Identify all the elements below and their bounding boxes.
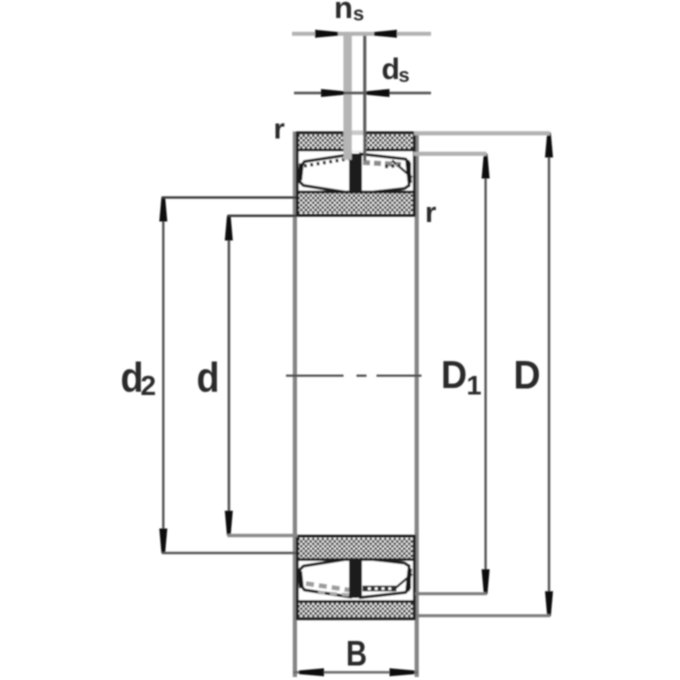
svg-text:B: B <box>346 635 367 674</box>
svg-text:d: d <box>197 354 220 401</box>
svg-text:d: d <box>382 53 400 86</box>
svg-text:1: 1 <box>467 371 482 401</box>
svg-text:r: r <box>425 197 436 229</box>
svg-text:s: s <box>399 65 410 87</box>
svg-text:n: n <box>334 0 353 25</box>
svg-text:D: D <box>514 354 541 398</box>
svg-text:s: s <box>353 4 364 26</box>
svg-text:r: r <box>274 114 285 146</box>
svg-text:2: 2 <box>141 370 157 401</box>
svg-text:D: D <box>441 354 467 397</box>
